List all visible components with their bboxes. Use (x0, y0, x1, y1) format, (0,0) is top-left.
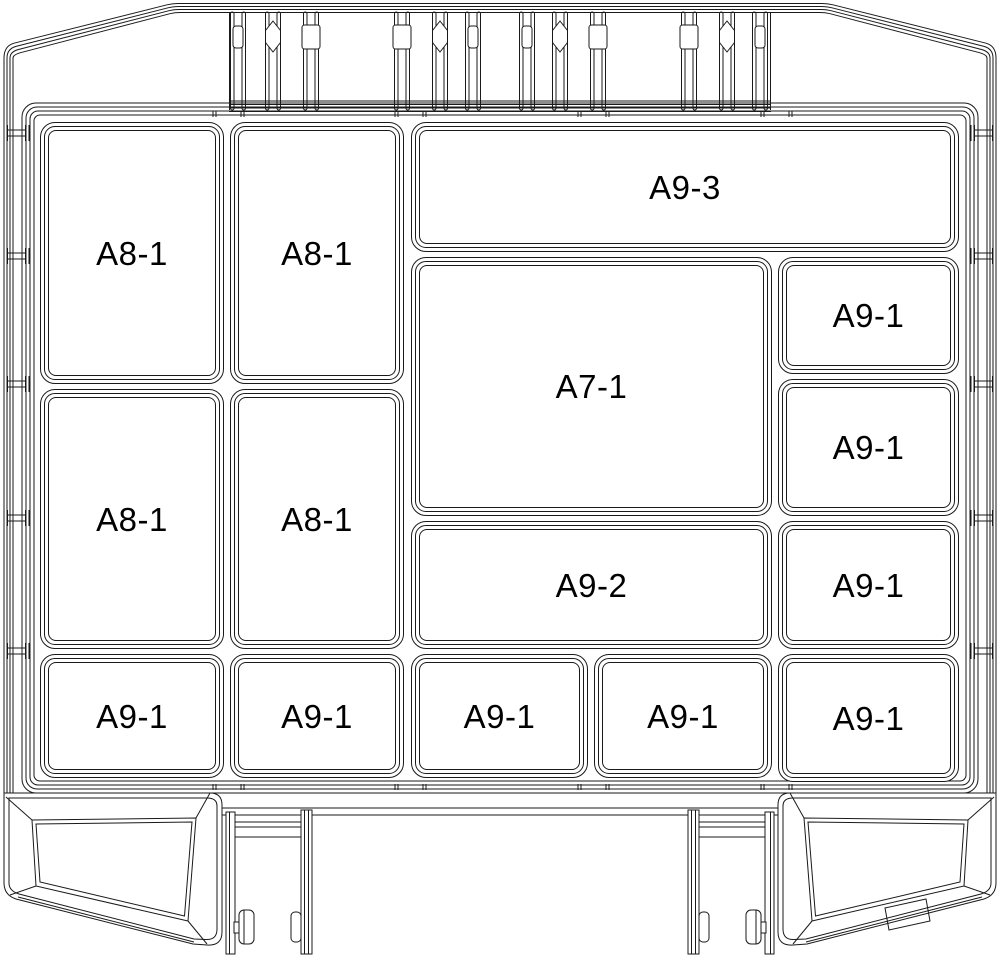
compartment-label: A8-1 (281, 237, 353, 270)
right-foot (778, 793, 996, 945)
left-rail-clip (4, 125, 29, 141)
compartment-a9-1-right-row1: A9-1 (778, 257, 959, 374)
left-clamp (226, 810, 312, 954)
compartment-label: A8-1 (281, 503, 353, 536)
right-rail-clip (971, 376, 996, 392)
compartment-a9-1-right-row4: A9-1 (778, 654, 959, 782)
compartment-a8-1-col1-row1: A8-1 (40, 122, 224, 384)
left-foot (4, 793, 222, 945)
compartment-label: A7-1 (556, 370, 628, 403)
compartment-label: A9-3 (649, 171, 721, 204)
compartment-a9-3: A9-3 (411, 122, 959, 252)
compartment-label: A9-1 (281, 700, 353, 733)
right-rail-clip (971, 248, 996, 264)
compartment-a8-1-col2-row2: A8-1 (230, 389, 404, 649)
left-rail-clip (4, 643, 29, 659)
compartment-label: A9-1 (833, 299, 905, 332)
compartment-a9-1-bottom-col1: A9-1 (40, 654, 224, 778)
rib-post-h (393, 12, 411, 110)
compartment-label: A9-1 (833, 431, 905, 464)
compartment-a9-2: A9-2 (411, 521, 772, 649)
rib-post-diamond (553, 12, 568, 110)
rib-post-h (302, 12, 320, 110)
rib-post-diamond (266, 12, 281, 110)
compartment-label: A8-1 (96, 503, 168, 536)
compartment-a7-1: A7-1 (411, 257, 772, 516)
rib-post-h (680, 12, 698, 110)
rib-post-plain (466, 12, 481, 110)
compartment-label: A9-2 (556, 569, 628, 602)
compartment-a9-1-right-row3: A9-1 (778, 521, 959, 649)
rib-post-plain (231, 12, 246, 110)
compartment-label: A8-1 (96, 237, 168, 270)
rib-post-plain (520, 12, 535, 110)
rib-post-plain (753, 12, 768, 110)
compartment-label: A9-1 (464, 700, 536, 733)
compartment-a9-1-bottom-col2: A9-1 (230, 654, 404, 778)
rib-post-h (589, 12, 607, 110)
compartment-a8-1-col2-row1: A8-1 (230, 122, 404, 384)
compartment-a9-1-bottom-mid1: A9-1 (411, 654, 588, 778)
compartment-label: A9-1 (833, 569, 905, 602)
right-rail-clip (971, 510, 996, 526)
left-rail-clip (4, 510, 29, 526)
compartment-label: A9-1 (96, 700, 168, 733)
compartment-a8-1-col1-row2: A8-1 (40, 389, 224, 649)
case-insert-drawing: A9-3 A8-1 A8-1 A7-1 A9-1 A8-1 A8-1 A9-1 … (0, 0, 1000, 956)
top-rib-band (229, 12, 771, 112)
compartment-a9-1-right-row2: A9-1 (778, 379, 959, 516)
right-clamp (688, 810, 774, 954)
right-rail-clip (971, 643, 996, 659)
rib-post-diamond (720, 12, 735, 110)
rib-post-diamond (433, 12, 448, 110)
compartment-label: A9-1 (647, 700, 719, 733)
right-rail-clip (971, 125, 996, 141)
left-rail-clip (4, 376, 29, 392)
left-rail-clip (4, 248, 29, 264)
compartment-label: A9-1 (833, 702, 905, 735)
compartment-a9-1-bottom-mid2: A9-1 (594, 654, 772, 778)
